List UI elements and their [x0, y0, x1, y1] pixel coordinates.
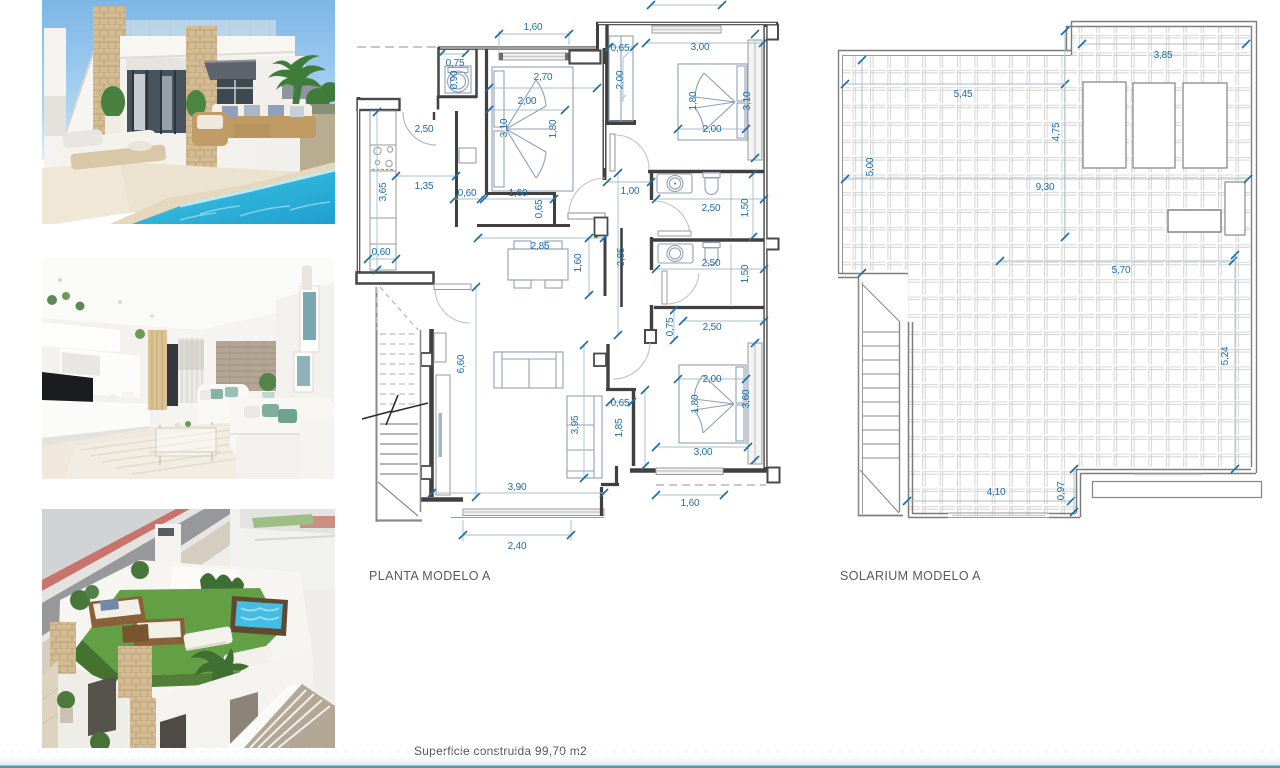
svg-text:2,00: 2,00 [518, 96, 537, 107]
svg-text:2,00: 2,00 [703, 374, 722, 385]
svg-text:2,50: 2,50 [703, 322, 722, 333]
svg-text:4,10: 4,10 [987, 487, 1006, 498]
svg-text:2,00: 2,00 [615, 70, 626, 89]
svg-text:0,97: 0,97 [1056, 481, 1067, 500]
svg-text:1,60: 1,60 [681, 498, 700, 509]
svg-text:1,60: 1,60 [509, 188, 528, 199]
svg-text:0,75: 0,75 [665, 317, 676, 336]
svg-text:0,65: 0,65 [534, 199, 545, 218]
svg-text:0,65: 0,65 [611, 43, 630, 54]
svg-text:3,85: 3,85 [616, 247, 627, 266]
svg-text:1,85: 1,85 [614, 418, 625, 437]
svg-text:5,00: 5,00 [865, 157, 876, 176]
svg-text:5,45: 5,45 [954, 89, 973, 100]
svg-text:1,50: 1,50 [740, 264, 751, 283]
svg-text:3,10: 3,10 [742, 91, 753, 110]
svg-text:2,50: 2,50 [702, 258, 721, 269]
svg-text:0,90: 0,90 [449, 70, 460, 89]
svg-text:1,35: 1,35 [415, 181, 434, 192]
svg-text:1,80: 1,80 [548, 119, 559, 138]
svg-text:3,00: 3,00 [691, 42, 710, 53]
svg-text:3,95: 3,95 [570, 415, 581, 434]
svg-text:0,60: 0,60 [372, 247, 391, 258]
svg-text:2,70: 2,70 [534, 72, 553, 83]
svg-text:3,00: 3,00 [694, 447, 713, 458]
svg-text:2,85: 2,85 [531, 241, 550, 252]
svg-text:2,50: 2,50 [415, 124, 434, 135]
svg-text:3,60: 3,60 [741, 389, 752, 408]
svg-text:2,50: 2,50 [702, 203, 721, 214]
svg-text:1,00: 1,00 [621, 186, 640, 197]
svg-text:1,50: 1,50 [740, 198, 751, 217]
svg-text:5,70: 5,70 [1112, 265, 1131, 276]
svg-text:0,75: 0,75 [446, 58, 465, 69]
svg-text:Superficie construida 99,70 m2: Superficie construida 99,70 m2 [414, 744, 587, 758]
svg-text:3,85: 3,85 [1154, 50, 1173, 61]
svg-text:0,60: 0,60 [458, 188, 477, 199]
svg-text:0,65: 0,65 [611, 398, 630, 409]
svg-text:SOLARIUM MODELO A: SOLARIUM MODELO A [840, 569, 981, 583]
svg-text:1,60: 1,60 [524, 22, 543, 33]
svg-text:1,80: 1,80 [688, 91, 699, 110]
svg-text:1,60: 1,60 [573, 253, 584, 272]
svg-text:3,90: 3,90 [508, 482, 527, 493]
svg-text:2,00: 2,00 [703, 124, 722, 135]
svg-text:1,80: 1,80 [690, 394, 701, 413]
svg-text:3,65: 3,65 [378, 182, 389, 201]
svg-text:5,24: 5,24 [1220, 346, 1231, 365]
svg-text:9,30: 9,30 [1036, 182, 1055, 193]
svg-text:2,40: 2,40 [508, 541, 527, 552]
svg-text:3,10: 3,10 [499, 118, 510, 137]
svg-text:4,75: 4,75 [1051, 122, 1062, 141]
svg-text:6,60: 6,60 [456, 354, 467, 373]
svg-text:PLANTA MODELO A: PLANTA MODELO A [369, 569, 491, 583]
